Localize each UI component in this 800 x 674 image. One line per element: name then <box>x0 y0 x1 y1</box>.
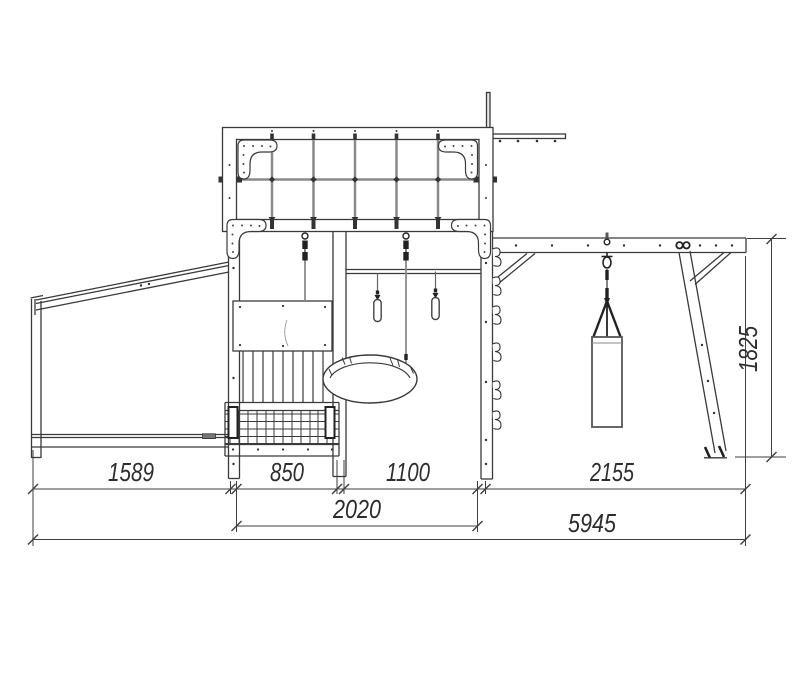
dim-bag-bay: 2155 <box>589 459 634 487</box>
gym-ring-right <box>432 272 439 320</box>
crossbeam <box>493 233 746 253</box>
dim-row-overall: 5945 <box>28 510 751 545</box>
punching-bag <box>592 253 622 428</box>
slide-exit-pad <box>203 434 216 439</box>
dim-overall-width: 5945 <box>568 510 617 538</box>
climbing-net-panel <box>219 128 498 259</box>
monkey-bar <box>346 270 481 274</box>
swing-hanger-rings <box>676 242 689 248</box>
basket-bracket-left <box>229 407 238 438</box>
shackle <box>603 257 611 268</box>
railing-slats <box>243 351 323 403</box>
dim-row-primary: 1589 850 1100 2155 <box>28 459 751 494</box>
dim-height: 1825 <box>735 234 777 462</box>
leg-brace <box>690 253 731 285</box>
wall-panel <box>233 301 332 351</box>
beam-bolts <box>515 244 733 246</box>
eye-bolt <box>606 233 609 239</box>
disc-swing <box>323 355 417 403</box>
dim-row-tower: 2020 <box>232 496 483 531</box>
bag-body <box>592 337 622 427</box>
blueprint-canvas: 1589 850 1100 2155 2020 5945 1825 <box>0 0 800 674</box>
dim-beam-height: 1825 <box>735 325 763 372</box>
dim-left-bay: 1589 <box>108 459 154 487</box>
side-shelf <box>493 134 566 142</box>
short-rope <box>302 225 308 302</box>
dim-swing-bay: 1100 <box>386 459 430 487</box>
support-leg <box>679 251 727 458</box>
dim-tower-width: 2020 <box>332 496 381 524</box>
dim-front-bay: 850 <box>270 459 304 487</box>
disc-swing-rope <box>403 225 409 365</box>
basket-bracket-right <box>326 407 335 438</box>
net-basket <box>225 403 339 457</box>
ramp-structure <box>31 262 230 458</box>
gym-ring-left <box>374 274 381 322</box>
